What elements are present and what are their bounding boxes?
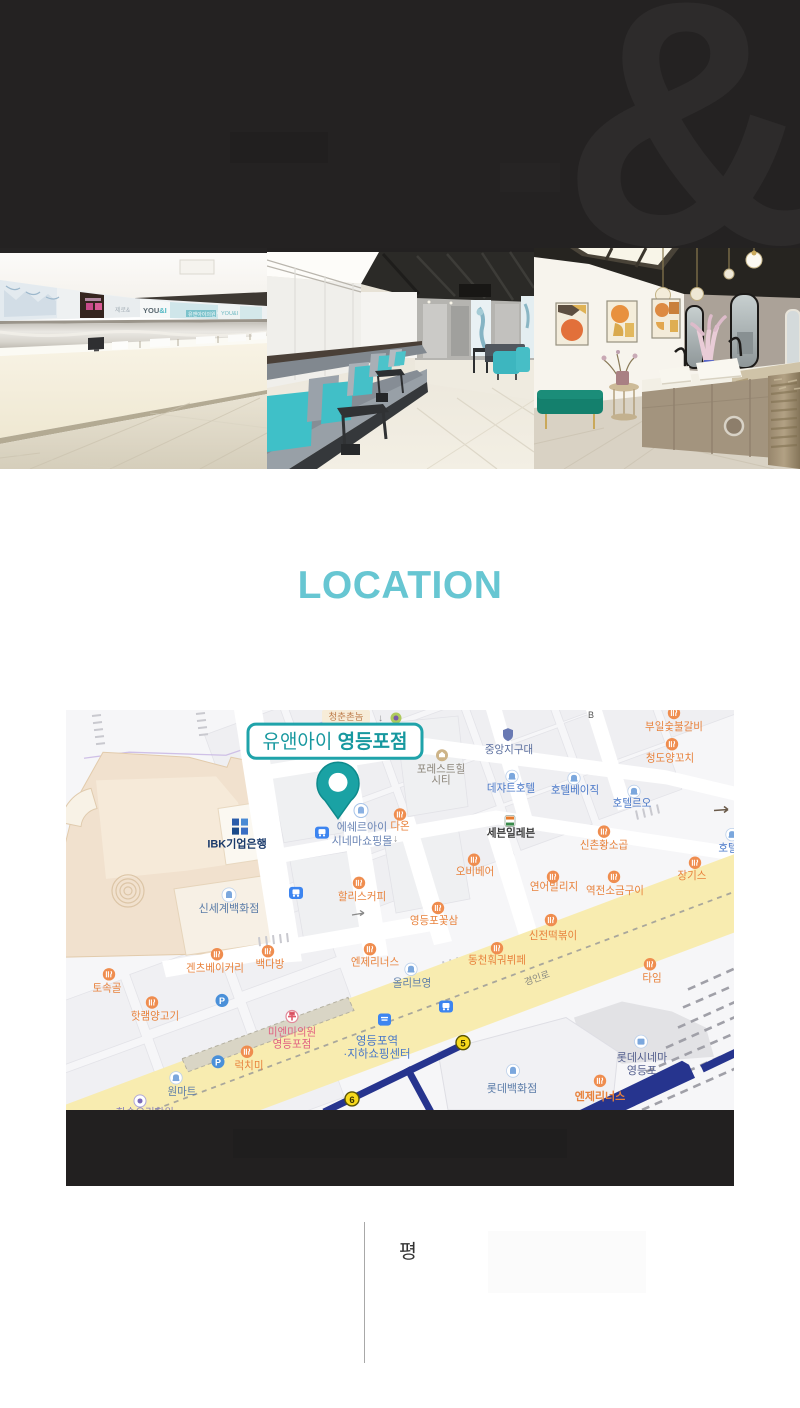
svg-text:호텔르오: 호텔르오: [613, 797, 652, 809]
svg-text:다온: 다온: [390, 821, 410, 833]
svg-text:6: 6: [349, 1095, 354, 1106]
svg-text:영등포: 영등포: [627, 1064, 657, 1077]
svg-text:롯데시네마: 롯데시네마: [617, 1051, 668, 1064]
svg-text:엔제리너스: 엔제리너스: [351, 956, 400, 968]
svg-text:세븐일레븐: 세븐일레븐: [487, 827, 536, 840]
svg-text:겐츠베이커리: 겐츠베이커리: [186, 962, 244, 974]
svg-text:호텔: 호텔: [718, 843, 734, 855]
svg-text:청도양꼬치: 청도양꼬치: [646, 752, 694, 764]
svg-text:호텔베이직: 호텔베이직: [551, 784, 599, 796]
svg-text:원마트: 원마트: [168, 1086, 197, 1098]
svg-text:영등포역: 영등포역: [356, 1035, 398, 1048]
svg-text:5: 5: [460, 1039, 466, 1050]
svg-text:엔제리너스: 엔제리너스: [575, 1089, 626, 1103]
svg-text:부일숯불갈비: 부일숯불갈비: [645, 720, 703, 733]
svg-text:YOU&I: YOU&I: [143, 306, 167, 315]
svg-text:백다방: 백다방: [256, 958, 285, 970]
svg-text:영등포점: 영등포점: [273, 1039, 312, 1051]
svg-text:할리스커피: 할리스커피: [338, 891, 386, 903]
svg-text:럭치미: 럭치미: [235, 1060, 264, 1072]
svg-text:제로&: 제로&: [115, 306, 130, 314]
svg-text:영등포꽃삼: 영등포꽃삼: [410, 915, 459, 927]
svg-text:동천훠궈뷔페: 동천훠궈뷔페: [468, 954, 526, 966]
svg-text:↓: ↓: [378, 713, 383, 724]
svg-text:토속골: 토속골: [93, 982, 122, 994]
svg-text:신세계백화점: 신세계백화점: [199, 902, 260, 915]
svg-text:미엔미의원: 미엔미의원: [268, 1027, 316, 1039]
svg-text:역전소금구이: 역전소금구이: [586, 885, 644, 897]
svg-text:·지하쇼핑센터: ·지하쇼핑센터: [343, 1047, 410, 1061]
svg-text:YOU&I: YOU&I: [221, 311, 239, 317]
svg-text:시티: 시티: [431, 774, 450, 786]
svg-text:올리브영: 올리브영: [393, 977, 432, 989]
svg-text:타임: 타임: [642, 971, 661, 984]
svg-text:신촌황소곱: 신촌황소곱: [580, 840, 629, 852]
svg-text:중앙지구대: 중앙지구대: [485, 744, 533, 756]
svg-text:↓: ↓: [393, 834, 398, 845]
svg-text:오비베어: 오비베어: [456, 866, 495, 878]
svg-text:롯데백화점: 롯데백화점: [487, 1082, 538, 1095]
svg-text:IBK기업은행: IBK기업은행: [207, 837, 266, 851]
svg-text:핫램양고기: 핫램양고기: [131, 1011, 179, 1023]
svg-text:데쟈트호텔: 데쟈트호텔: [487, 782, 535, 794]
svg-text:장기스: 장기스: [678, 870, 707, 882]
svg-text:신전떡볶이: 신전떡볶이: [529, 930, 577, 942]
svg-text:에쉐르아이: 에쉐르아이: [337, 821, 388, 834]
svg-text:B: B: [588, 710, 594, 720]
svg-text:연어빌리지: 연어빌리지: [530, 881, 578, 893]
svg-text:시네마쇼핑몰: 시네마쇼핑몰: [332, 835, 393, 848]
svg-text:청춘촌놈: 청춘촌놈: [329, 712, 364, 723]
svg-text:유앤아이 영등포점: 유앤아이 영등포점: [262, 731, 407, 753]
